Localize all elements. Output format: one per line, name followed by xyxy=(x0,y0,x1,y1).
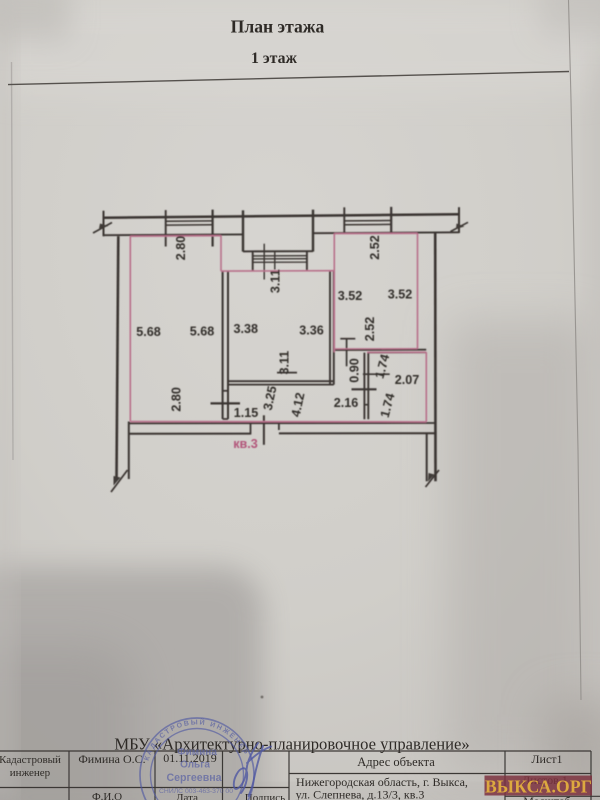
svg-text:2.16: 2.16 xyxy=(334,396,359,410)
svg-text:3.36: 3.36 xyxy=(299,324,324,338)
svg-text:План этажа: План этажа xyxy=(231,17,325,37)
svg-text:ул. Слепнева, д.13/3, кв.3: ул. Слепнева, д.13/3, кв.3 xyxy=(296,788,425,800)
svg-text:Сергеевна: Сергеевна xyxy=(166,772,221,784)
svg-text:1.15: 1.15 xyxy=(234,406,259,420)
svg-text:2.52: 2.52 xyxy=(363,317,377,342)
svg-text:2.07: 2.07 xyxy=(395,373,420,387)
svg-text:кв.3: кв.3 xyxy=(233,437,258,451)
svg-text:Лист1: Лист1 xyxy=(531,752,562,766)
svg-text:инженер: инженер xyxy=(10,767,51,779)
svg-text:3.11: 3.11 xyxy=(278,351,292,375)
svg-text:Фимина: Фимина xyxy=(177,747,217,758)
svg-text:3.11: 3.11 xyxy=(268,269,282,293)
svg-text:3.52: 3.52 xyxy=(388,288,413,302)
svg-text:Адрес объекта: Адрес объекта xyxy=(357,755,435,769)
svg-text:5.68: 5.68 xyxy=(136,325,161,339)
svg-text:3.38: 3.38 xyxy=(233,322,258,336)
svg-text:Ф.И.О: Ф.И.О xyxy=(92,791,122,800)
svg-text:2.80: 2.80 xyxy=(170,387,184,412)
svg-text:Кадастровый: Кадастровый xyxy=(0,754,61,766)
svg-text:3.52: 3.52 xyxy=(338,289,363,303)
svg-text:5.68: 5.68 xyxy=(190,325,215,339)
svg-text:2.80: 2.80 xyxy=(174,236,188,261)
svg-text:2.52: 2.52 xyxy=(368,235,382,260)
svg-text:Фимина О.С.: Фимина О.С. xyxy=(78,752,145,766)
svg-text:СНИЛС 003-463-370 00: СНИЛС 003-463-370 00 xyxy=(159,788,233,795)
svg-text:0.90: 0.90 xyxy=(348,358,362,383)
svg-text:ВЫКСА.ОРГ: ВЫКСА.ОРГ xyxy=(485,777,592,797)
svg-text:1 этаж: 1 этаж xyxy=(251,50,298,67)
svg-text:Ольга: Ольга xyxy=(180,760,210,771)
